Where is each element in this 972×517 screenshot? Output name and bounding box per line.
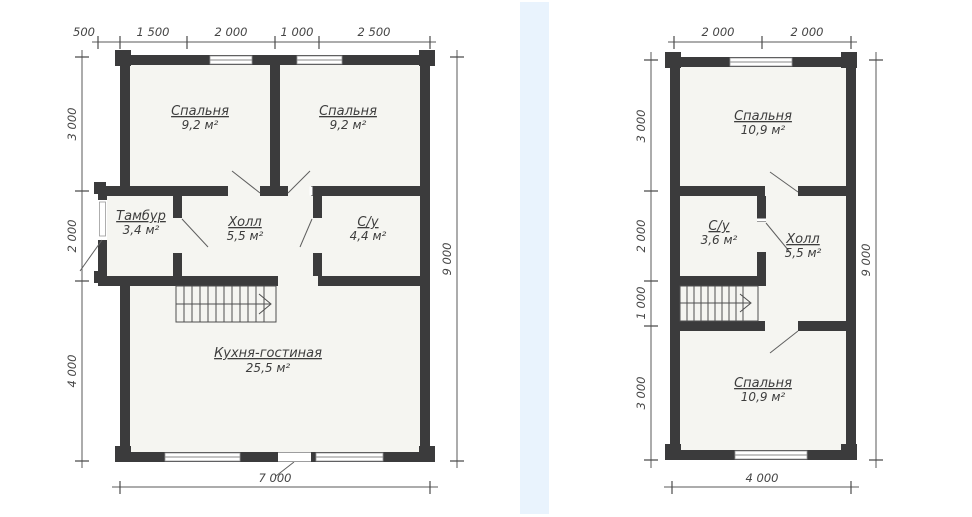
- room-area: 3,6 м²: [701, 233, 738, 247]
- room-area: 10,9 м²: [741, 123, 786, 137]
- room-area: 9,2 м²: [330, 118, 367, 132]
- dim-label: 2 000: [65, 220, 79, 253]
- dim-label: 2 000: [634, 220, 648, 253]
- dim-label: 1 500: [137, 25, 170, 39]
- floor2-plan: Спальня 10,9 м² С/у 3,6 м² Холл 5,5 м² С…: [634, 25, 883, 494]
- floor1-stairs-icon: [176, 286, 276, 322]
- dim-label: 2 000: [215, 25, 248, 39]
- dim-label: 2 500: [358, 25, 391, 39]
- room-label: Холл: [785, 232, 819, 247]
- door-opening: [278, 453, 311, 462]
- room-label: Спальня: [319, 104, 377, 119]
- room-area: 9,2 м²: [182, 118, 219, 132]
- room-area: 5,5 м²: [785, 246, 822, 260]
- room-area: 25,5 м²: [246, 361, 291, 375]
- dim-label: 500: [73, 25, 95, 39]
- room-area: 3,4 м²: [123, 223, 160, 237]
- dim-label: 3 000: [634, 377, 648, 410]
- dim-label: 3 000: [634, 110, 648, 143]
- floor2-stairs-icon: [680, 286, 758, 321]
- room-area: 10,9 м²: [741, 390, 786, 404]
- floor-plan-sheet: Спальня 9,2 м² Спальня 9,2 м² Тамбур 3,4…: [0, 0, 972, 517]
- dim-label: 1 000: [634, 287, 648, 320]
- room-label: Холл: [227, 215, 261, 230]
- room-label: Спальня: [734, 109, 792, 124]
- room-label: С/у: [357, 215, 378, 230]
- room-label: Кухня-гостиная: [214, 346, 322, 361]
- plans-drawing: Спальня 9,2 м² Спальня 9,2 м² Тамбур 3,4…: [0, 0, 972, 517]
- room-area: 5,5 м²: [227, 229, 264, 243]
- dim-label: 9 000: [440, 243, 454, 276]
- room-label: С/у: [708, 219, 729, 234]
- dim-label: 7 000: [259, 471, 292, 485]
- room-label: Спальня: [171, 104, 229, 119]
- dim-label: 4 000: [746, 471, 779, 485]
- room-area: 4,4 м²: [350, 229, 387, 243]
- floor1-plan: Спальня 9,2 м² Спальня 9,2 м² Тамбур 3,4…: [65, 25, 464, 494]
- room-label: Спальня: [734, 376, 792, 391]
- dim-label: 1 000: [281, 25, 314, 39]
- dim-label: 2 000: [702, 25, 735, 39]
- dim-label: 3 000: [65, 108, 79, 141]
- dim-label: 4 000: [65, 355, 79, 388]
- dim-label: 2 000: [791, 25, 824, 39]
- dim-label: 9 000: [859, 244, 873, 277]
- room-label: Тамбур: [116, 209, 166, 224]
